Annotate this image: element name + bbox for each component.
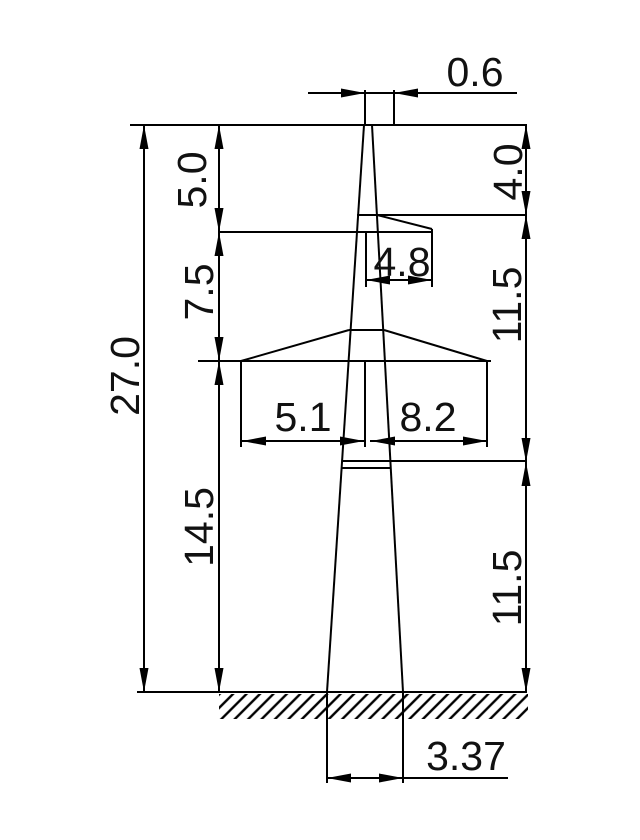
arrow-total-top (140, 125, 149, 149)
arrow-crossarm-51-left (242, 437, 266, 446)
dim-label-lower-crossarm-right: 8.2 (400, 394, 457, 440)
dim-label-left-upper: 5.0 (169, 152, 215, 209)
dim-label-top-width: 0.6 (447, 49, 504, 95)
arrow-left-lower-bottom (215, 668, 224, 692)
dim-label-right-lower: 11.5 (484, 550, 530, 627)
dimension-labels: 0.6 4.8 5.1 8.2 3.37 27.0 5.0 7.5 14.5 4… (102, 49, 531, 779)
mid-crossarm-slant-left (241, 330, 349, 361)
arrow-total-bottom (140, 668, 149, 692)
dim-label-left-lower: 14.5 (176, 487, 222, 567)
arrow-top-width-right (394, 89, 418, 98)
arrow-left-upper-top (215, 125, 224, 149)
upper-crossarm-slant (377, 215, 432, 229)
dim-label-total-height: 27.0 (102, 336, 148, 416)
arrow-right-lower-bottom (522, 668, 531, 692)
ground-hatch (219, 694, 528, 719)
arrow-right-lower-top (522, 462, 531, 486)
arrow-right-middle-bottom (522, 438, 531, 462)
dim-label-left-middle: 7.5 (176, 264, 222, 321)
arrow-base-left (327, 774, 351, 783)
tower-elevation-drawing: 0.6 4.8 5.1 8.2 3.37 27.0 5.0 7.5 14.5 4… (0, 0, 640, 840)
dim-label-right-middle: 11.5 (484, 267, 530, 344)
arrow-left-upper-bottom (215, 208, 224, 232)
arrow-left-lower-top (215, 361, 224, 385)
drawing-canvas: 0.6 4.8 5.1 8.2 3.37 27.0 5.0 7.5 14.5 4… (0, 0, 640, 840)
arrow-crossarm-82-left (371, 437, 395, 446)
arrow-right-middle-top (522, 215, 531, 239)
arrow-crossarm-51-right (340, 437, 364, 446)
tower-left-edge (327, 125, 364, 692)
dim-label-right-upper: 4.0 (485, 144, 531, 201)
arrow-top-width-left (341, 89, 365, 98)
arrow-base-right (379, 774, 403, 783)
arrow-crossarm-82-right (463, 437, 487, 446)
dim-label-base-width: 3.37 (426, 733, 506, 779)
mid-crossarm-slant-right (384, 330, 487, 361)
dim-label-upper-crossarm: 4.8 (374, 239, 431, 285)
dim-label-lower-crossarm-left: 5.1 (275, 394, 332, 440)
arrow-left-middle-top (215, 232, 224, 256)
arrow-left-middle-bottom (215, 337, 224, 361)
tower-right-edge (372, 125, 403, 692)
